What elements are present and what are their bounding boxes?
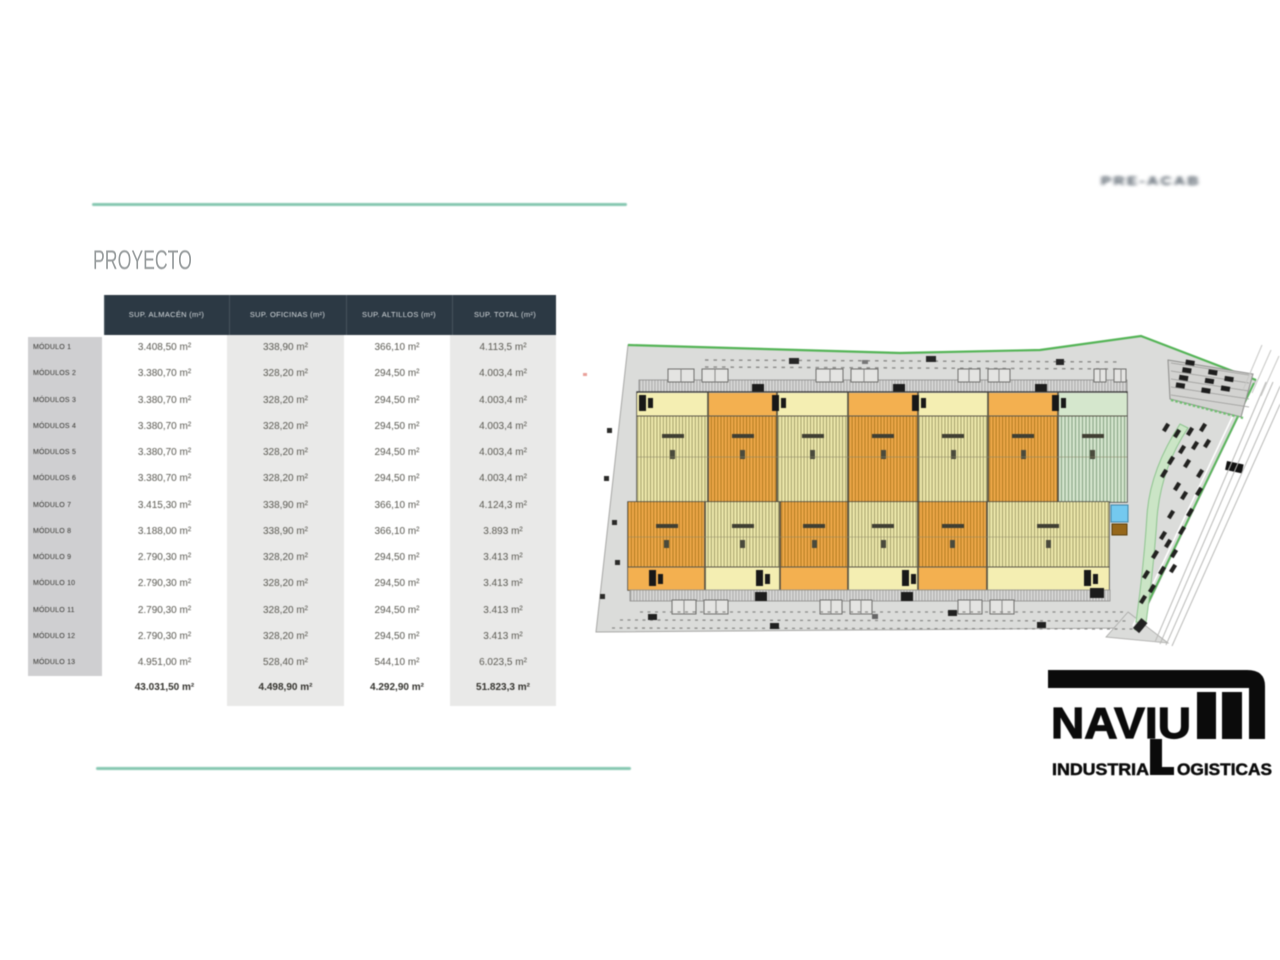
svg-text:INDUSTRIA: INDUSTRIA (1052, 760, 1149, 779)
svg-text:OGISTICAS: OGISTICAS (1177, 760, 1272, 779)
svg-text:NAVIU: NAVIU (1051, 699, 1191, 748)
